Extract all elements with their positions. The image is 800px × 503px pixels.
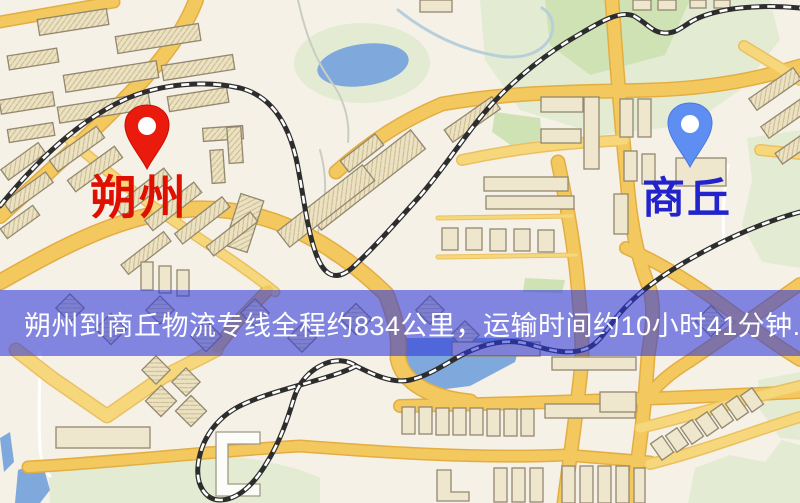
destination-label: 商丘 (642, 178, 732, 221)
origin-pin-icon (123, 103, 171, 171)
destination-pin-icon (666, 101, 714, 169)
route-info-text: 朔州到商丘物流专线全程约834公里，运输时间约10小时41分钟. (24, 304, 800, 343)
route-map-screenshot: 朔州 商丘 朔州到商丘物流专线全程约834公里，运输时间约10小时41分钟. (0, 0, 800, 503)
route-info-banner: 朔州到商丘物流专线全程约834公里，运输时间约10小时41分钟. (0, 290, 800, 356)
origin-label: 朔州 (90, 176, 188, 223)
map-canvas (0, 0, 800, 503)
